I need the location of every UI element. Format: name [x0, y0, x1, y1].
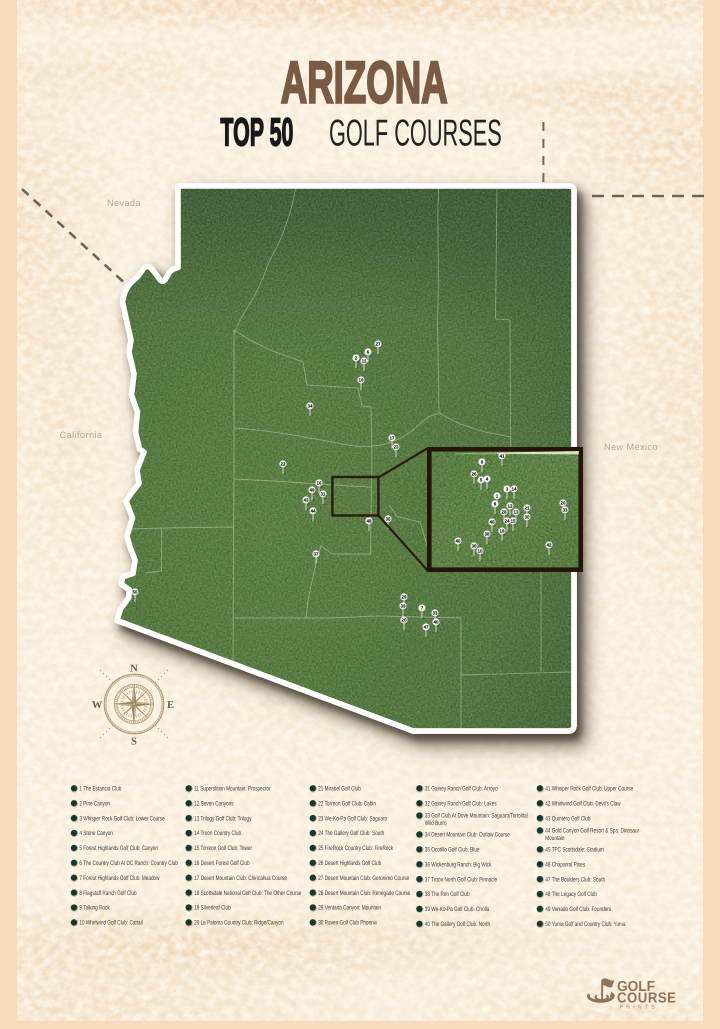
svg-text:S: S — [131, 737, 137, 748]
svg-text:6 The Country Club At DC Ranch: 6 The Country Club At DC Ranch: Country … — [79, 860, 178, 867]
svg-text:33 Golf Club At Dove Mountain:: 33 Golf Club At Dove Mountain: Saguaro/T… — [425, 813, 528, 820]
svg-text:43 Quintero Golf Club: 43 Quintero Golf Club — [545, 815, 590, 822]
svg-text:17: 17 — [389, 436, 394, 441]
svg-text:46: 46 — [489, 520, 494, 525]
svg-text:ARIZONA: ARIZONA — [281, 49, 448, 115]
svg-text:21 Mirabel Golf Club: 21 Mirabel Golf Club — [318, 786, 361, 793]
svg-text:19: 19 — [358, 378, 363, 383]
svg-text:9 Talking Rock: 9 Talking Rock — [79, 905, 110, 912]
svg-text:N: N — [130, 664, 138, 675]
svg-text:50 Yuma Golf and Country Club:: 50 Yuma Golf and Country Club: Yuma — [545, 921, 626, 928]
svg-text:5: 5 — [480, 478, 483, 483]
svg-text:4: 4 — [486, 477, 489, 482]
svg-text:48 The Legacy Golf Club: 48 The Legacy Golf Club — [545, 891, 597, 898]
svg-text:10 Whirlwind Golf Club: Cattai: 10 Whirlwind Golf Club: Cattail — [79, 920, 142, 927]
svg-text:40 The Gallery Golf Club: Nort: 40 The Gallery Golf Club: North — [425, 921, 491, 928]
svg-text:29 Ventana Canyon: Mountain: 29 Ventana Canyon: Mountain — [318, 905, 381, 912]
svg-text:14 Troon Country Club: 14 Troon Country Club — [194, 830, 241, 837]
svg-text:W: W — [92, 700, 103, 711]
svg-text:50: 50 — [132, 590, 137, 595]
svg-text:PRINTS: PRINTS — [620, 1004, 658, 1010]
svg-text:22: 22 — [280, 462, 285, 467]
svg-text:41: 41 — [499, 454, 504, 459]
svg-text:22 Torreon Golf Club: Cabin: 22 Torreon Golf Club: Cabin — [318, 800, 376, 807]
svg-text:8 Flagstaff Ranch Golf Club: 8 Flagstaff Ranch Golf Club — [79, 890, 137, 897]
svg-text:27 Desert Mountain Club: Geron: 27 Desert Mountain Club: Geronimo Course — [318, 875, 409, 882]
svg-text:25 FireRock Country Club: Fire: 25 FireRock Country Club: FireRock — [318, 845, 394, 852]
svg-text:15: 15 — [510, 519, 515, 524]
svg-text:18: 18 — [499, 529, 504, 534]
svg-text:13 Trilogy Golf Club: Trilogy: 13 Trilogy Golf Club: Trilogy — [194, 815, 252, 822]
svg-text:49 Verrado Golf Club: Founders: 49 Verrado Golf Club: Founders — [545, 906, 611, 913]
svg-text:18 Scottsdale National Golf Cl: 18 Scottsdale National Golf Club: The Ot… — [194, 890, 302, 897]
svg-text:35: 35 — [385, 517, 390, 522]
svg-text:29: 29 — [401, 595, 406, 600]
svg-text:42: 42 — [546, 543, 551, 548]
svg-text:New Mexico: New Mexico — [604, 442, 658, 452]
svg-text:16 Desert Forest Golf Club: 16 Desert Forest Golf Club — [194, 860, 250, 867]
svg-text:11: 11 — [362, 359, 367, 364]
svg-text:34: 34 — [307, 404, 312, 409]
svg-text:40: 40 — [433, 620, 438, 625]
svg-text:11 Superstition Mountain: Pros: 11 Superstition Mountain: Prospector — [194, 786, 271, 793]
svg-text:37: 37 — [313, 552, 318, 557]
svg-text:47: 47 — [423, 625, 428, 630]
svg-text:20: 20 — [560, 501, 565, 506]
svg-text:12: 12 — [507, 504, 512, 509]
svg-text:Nevada: Nevada — [107, 198, 142, 208]
svg-text:39 We-Ko-Pa Golf Club: Cholla: 39 We-Ko-Pa Golf Club: Cholla — [425, 906, 490, 913]
svg-text:32 Gainey Ranch Golf Club: Lak: 32 Gainey Ranch Golf Club: Lakes — [425, 800, 497, 807]
svg-text:12 Seven Canyons: 12 Seven Canyons — [194, 800, 233, 807]
svg-text:13: 13 — [513, 510, 518, 515]
svg-text:44: 44 — [310, 509, 315, 514]
svg-text:6: 6 — [367, 350, 370, 355]
svg-text:Mountain: Mountain — [545, 835, 565, 842]
svg-text:24: 24 — [504, 519, 509, 524]
svg-text:36: 36 — [471, 544, 476, 549]
svg-text:39: 39 — [400, 604, 405, 609]
svg-text:30 Raven Golf Club Phoenix: 30 Raven Golf Club Phoenix — [318, 920, 377, 927]
svg-text:9: 9 — [494, 502, 497, 507]
svg-text:16: 16 — [316, 481, 321, 486]
svg-text:19 Silverleaf Club: 19 Silverleaf Club — [194, 905, 231, 912]
svg-text:35 Ocotillo Golf Club: Blue: 35 Ocotillo Golf Club: Blue — [425, 847, 480, 854]
svg-text:26: 26 — [471, 472, 476, 477]
svg-text:28 Desert Mountain Club: Reneg: 28 Desert Mountain Club: Renegade Course — [318, 890, 410, 897]
svg-text:38 The Rim Golf Club: 38 The Rim Golf Club — [425, 891, 470, 898]
svg-text:2 Pine Canyon: 2 Pine Canyon — [79, 800, 110, 807]
svg-text:33: 33 — [562, 508, 567, 513]
svg-text:23 We-Ko-Pa Golf Club: Saguaro: 23 We-Ko-Pa Golf Club: Saguaro — [318, 815, 387, 822]
svg-text:23: 23 — [393, 445, 398, 450]
svg-text:GOLF COURSES: GOLF COURSES — [329, 112, 502, 154]
svg-text:5 Forest Highlands Golf Club:: 5 Forest Highlands Golf Club: Canyon — [79, 845, 158, 852]
svg-text:21: 21 — [524, 506, 529, 511]
svg-text:14: 14 — [511, 487, 516, 492]
svg-text:2: 2 — [355, 356, 358, 361]
svg-text:46 Chaparral Pines: 46 Chaparral Pines — [545, 861, 585, 868]
svg-text:7 Forest Highlands Golf Club:: 7 Forest Highlands Golf Club: Meadow — [79, 875, 159, 882]
svg-text:1: 1 — [496, 494, 499, 499]
svg-text:47 The Boulders Club: South: 47 The Boulders Club: South — [545, 876, 605, 883]
svg-text:48: 48 — [366, 519, 371, 524]
svg-text:8: 8 — [481, 460, 484, 465]
svg-text:7: 7 — [421, 606, 424, 611]
svg-text:10: 10 — [477, 549, 482, 554]
svg-text:California: California — [60, 430, 103, 440]
svg-text:24 The Gallery Golf Club: Sout: 24 The Gallery Golf Club: South — [318, 830, 384, 837]
svg-text:26 Desert Highlands Golf Club: 26 Desert Highlands Golf Club — [318, 860, 381, 867]
svg-text:37 Troon North Golf Club: Pinn: 37 Troon North Golf Club: Pinnacle — [425, 876, 498, 883]
svg-text:45 TPC Scottsdale: Stadium: 45 TPC Scottsdale: Stadium — [545, 847, 604, 854]
svg-text:44 Gold Canyon Golf Resort & S: 44 Gold Canyon Golf Resort & Spa: Dinosa… — [545, 827, 640, 834]
svg-text:17 Desert Mountain Club: Chiri: 17 Desert Mountain Club: Chiricahua Cour… — [194, 875, 287, 882]
svg-text:41 Whisper Rock Golf Club: Upp: 41 Whisper Rock Golf Club: Upper Course — [545, 786, 633, 793]
svg-text:34 Desert Mountain Club: Outla: 34 Desert Mountain Club: Outlaw Course — [425, 832, 510, 839]
svg-text:28: 28 — [501, 510, 506, 515]
svg-text:Wild Burro: Wild Burro — [425, 820, 447, 827]
svg-text:3 Whisper Rock Golf Club: Lowe: 3 Whisper Rock Golf Club: Lower Course — [79, 815, 165, 822]
svg-text:49: 49 — [309, 488, 314, 493]
svg-text:27: 27 — [375, 342, 380, 347]
svg-text:31 Gainey Ranch Golf Club: Arr: 31 Gainey Ranch Golf Club: Arroyo — [425, 786, 498, 793]
svg-text:33: 33 — [432, 611, 437, 616]
svg-text:20: 20 — [401, 618, 406, 623]
svg-text:43: 43 — [303, 498, 308, 503]
svg-text:38: 38 — [484, 532, 489, 537]
svg-text:4 Stone Canyon: 4 Stone Canyon — [79, 830, 113, 837]
svg-text:30: 30 — [524, 515, 529, 520]
svg-text:42 Whirlwind Golf Club: Devil': 42 Whirlwind Golf Club: Devil's Claw — [545, 800, 621, 807]
svg-text:3: 3 — [506, 487, 509, 492]
svg-text:20 La Paloma Country Club: Rid: 20 La Paloma Country Club: Ridge/Canyon — [194, 920, 284, 927]
svg-text:40: 40 — [455, 539, 460, 544]
svg-text:36 Wickenburg Ranch: Big Wick: 36 Wickenburg Ranch: Big Wick — [425, 861, 492, 868]
svg-text:1 The Estancia Club: 1 The Estancia Club — [79, 786, 121, 793]
svg-text:E: E — [167, 700, 174, 711]
svg-text:15 Torreon Golf Club: Tower: 15 Torreon Golf Club: Tower — [194, 845, 253, 852]
svg-text:TOP 50: TOP 50 — [220, 111, 293, 155]
svg-text:31: 31 — [320, 492, 325, 497]
